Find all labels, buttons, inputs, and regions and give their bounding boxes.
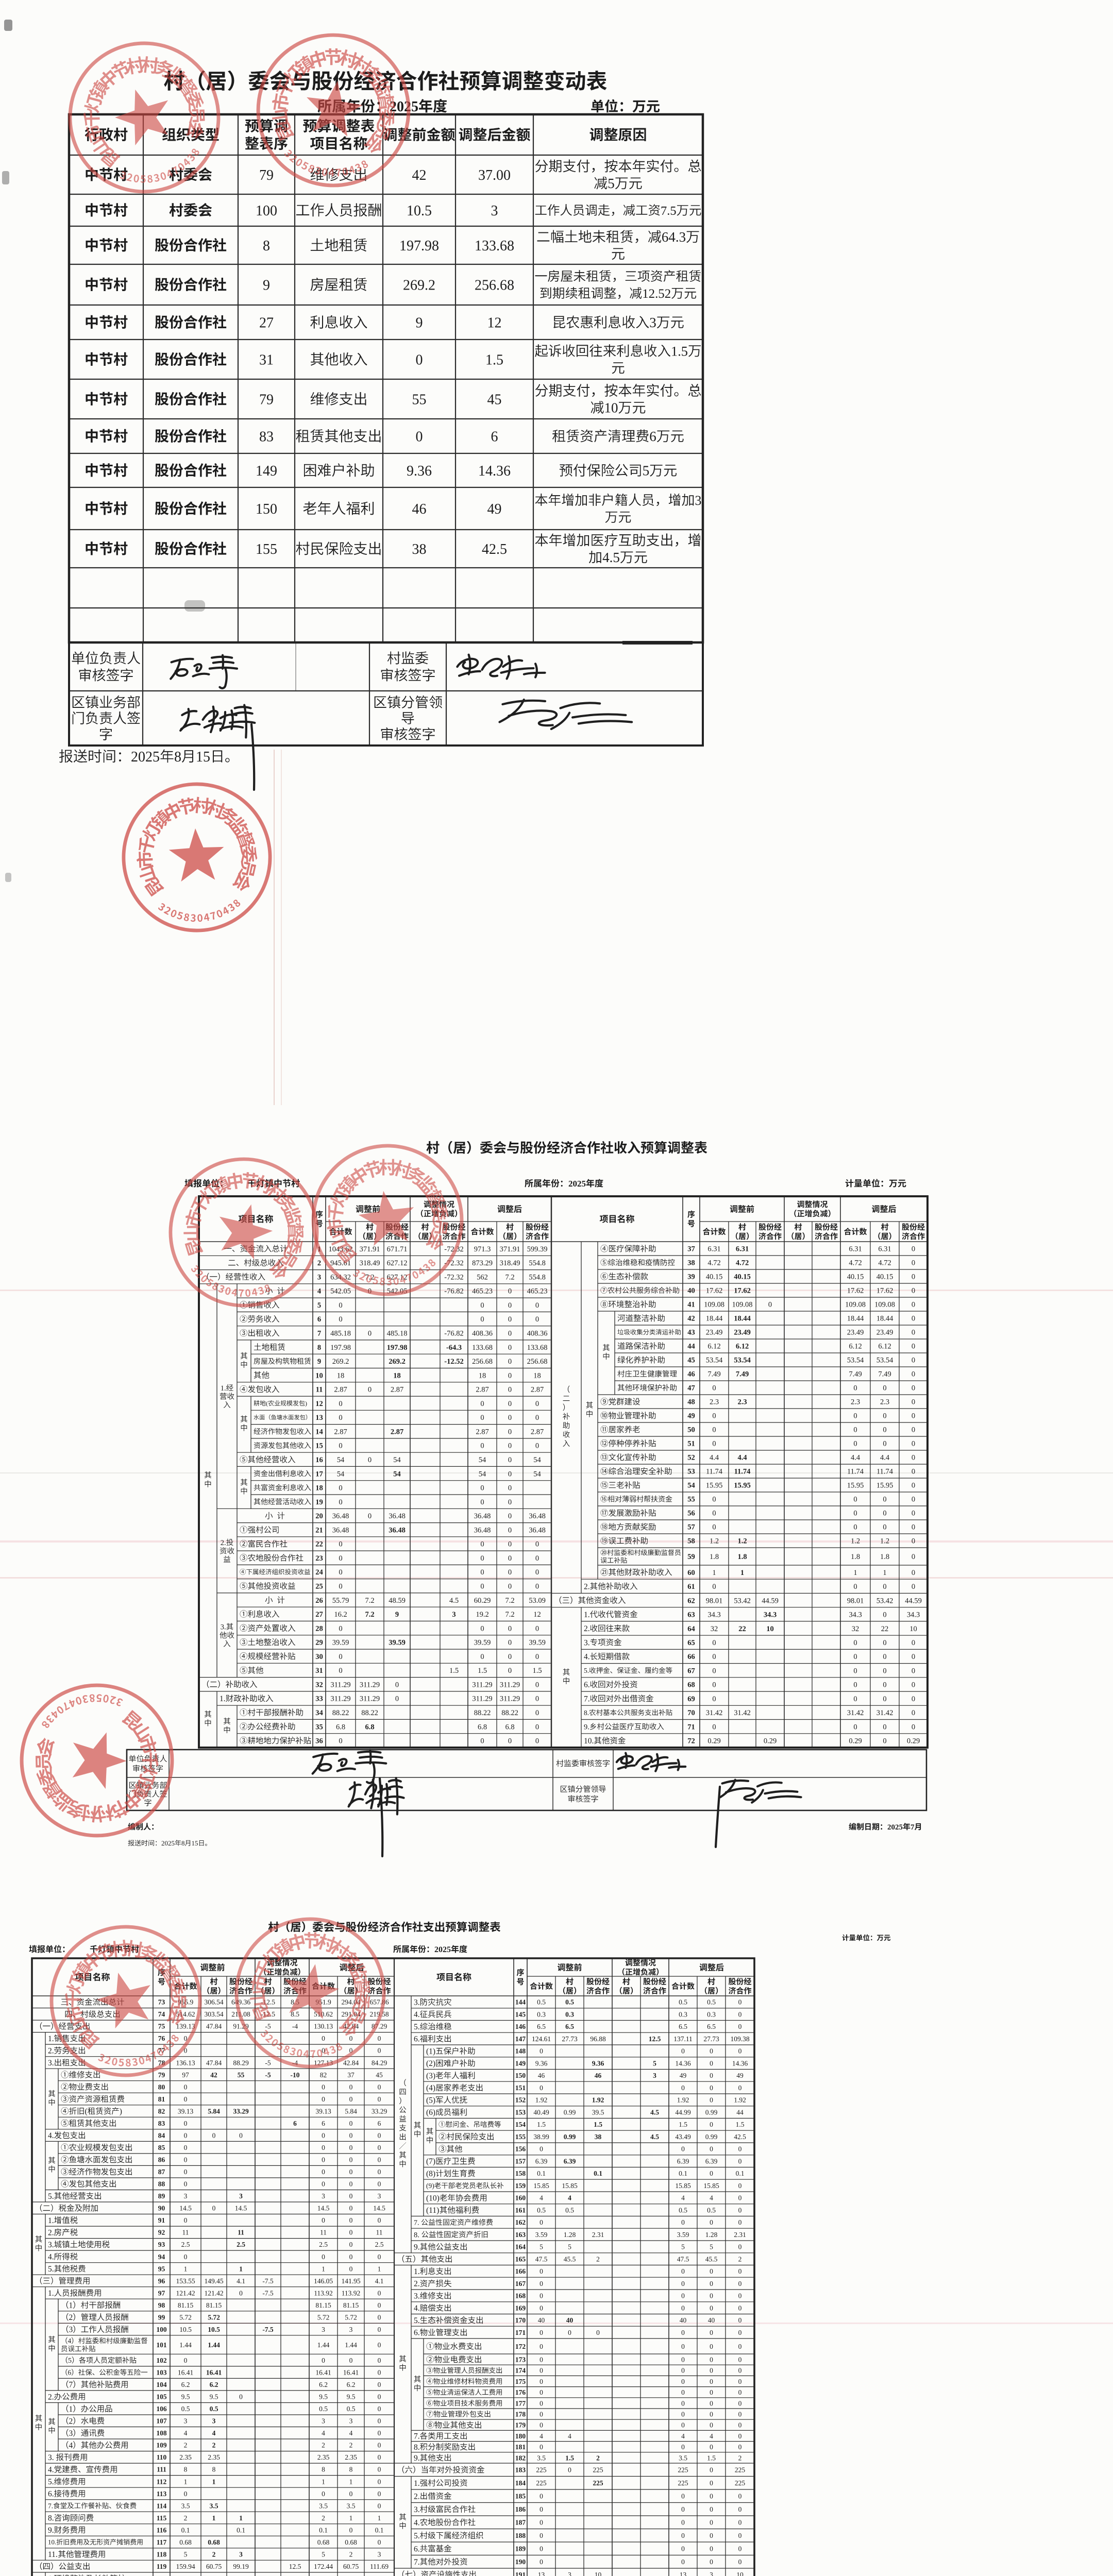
svg-text:0: 0 [710, 2505, 713, 2513]
svg-text:34.3: 34.3 [849, 1611, 862, 1619]
svg-text:36.48: 36.48 [529, 1526, 546, 1534]
svg-text:80: 80 [158, 2083, 165, 2091]
svg-text:0: 0 [738, 2329, 742, 2336]
svg-text:5.84: 5.84 [208, 2107, 220, 2115]
svg-text:0: 0 [480, 1653, 484, 1661]
svg-text:22: 22 [315, 1540, 323, 1549]
svg-text:0.1: 0.1 [736, 2170, 745, 2177]
svg-text:23.49: 23.49 [706, 1329, 723, 1337]
svg-text:52: 52 [687, 1454, 695, 1462]
svg-text:0: 0 [378, 2369, 381, 2377]
svg-text:0: 0 [535, 1709, 539, 1717]
svg-text:90: 90 [158, 2205, 165, 2212]
svg-text:269.2: 269.2 [403, 278, 435, 294]
svg-text:-10: -10 [291, 2071, 300, 2079]
svg-text:0: 0 [681, 2047, 685, 2055]
svg-text:3: 3 [649, 315, 656, 330]
svg-text:3: 3 [212, 2417, 216, 2425]
svg-text:14.36: 14.36 [732, 2060, 748, 2067]
svg-text:97: 97 [158, 2289, 165, 2297]
svg-text:0: 0 [184, 2490, 188, 2498]
svg-text:0.5: 0.5 [565, 1998, 574, 2006]
svg-text:6.39: 6.39 [705, 2158, 718, 2165]
svg-text:53.54: 53.54 [734, 1357, 751, 1365]
svg-text:225: 225 [536, 2479, 547, 2487]
svg-text:15: 15 [315, 1442, 323, 1450]
svg-text:37: 37 [347, 2071, 355, 2079]
svg-text:2.5: 2.5 [237, 2241, 245, 2248]
svg-text:12: 12 [315, 1400, 323, 1408]
svg-text:39.59: 39.59 [389, 1639, 406, 1647]
svg-text:3.59: 3.59 [677, 2231, 689, 2239]
svg-text:166: 166 [515, 2267, 526, 2275]
svg-text:0: 0 [184, 2168, 188, 2176]
svg-text:38: 38 [687, 1259, 695, 1267]
svg-text:1: 1 [883, 1569, 886, 1577]
svg-text:0: 0 [912, 1510, 915, 1518]
svg-text:16.2: 16.2 [334, 1611, 347, 1619]
svg-text:0: 0 [508, 1470, 512, 1478]
svg-text:4: 4 [322, 2429, 325, 2437]
svg-text:7.49: 7.49 [878, 1370, 891, 1379]
svg-text:6: 6 [378, 2120, 381, 2127]
svg-text:0: 0 [508, 1512, 512, 1520]
svg-text:408.36: 408.36 [527, 1330, 548, 1338]
svg-text:0: 0 [378, 2478, 381, 2485]
svg-text:23.49: 23.49 [734, 1329, 751, 1337]
svg-text:0: 0 [535, 1554, 539, 1563]
svg-text:75: 75 [158, 2023, 165, 2030]
svg-text:81.15: 81.15 [343, 2301, 359, 2309]
svg-text:0: 0 [681, 2145, 685, 2153]
svg-text:167: 167 [515, 2280, 526, 2287]
svg-text:36.48: 36.48 [529, 1512, 546, 1520]
svg-text:4: 4 [681, 2194, 685, 2202]
svg-text:1.5: 1.5 [537, 2121, 546, 2128]
svg-text:0: 0 [535, 1400, 539, 1408]
svg-text:303.54: 303.54 [204, 2010, 223, 2018]
svg-text:0: 0 [912, 1583, 915, 1591]
svg-text:6.8: 6.8 [505, 1723, 514, 1731]
svg-text:83: 83 [158, 2120, 165, 2127]
svg-text:4: 4 [710, 2432, 713, 2440]
svg-text:163: 163 [515, 2231, 526, 2239]
svg-text:0: 0 [712, 1695, 716, 1703]
svg-text:9: 9 [317, 1358, 321, 1366]
svg-text:2.: 2. [221, 1539, 226, 1547]
svg-text:(1): (1) [426, 2047, 435, 2056]
svg-text:1.8: 1.8 [851, 1553, 860, 1561]
svg-text:42.5: 42.5 [734, 2133, 746, 2141]
svg-text:69: 69 [687, 1695, 695, 1703]
svg-text:0: 0 [368, 1512, 372, 1520]
svg-text:79: 79 [259, 167, 274, 183]
svg-text:13: 13 [680, 2571, 687, 2576]
svg-text:3: 3 [349, 2417, 353, 2425]
svg-text:225: 225 [593, 2479, 603, 2487]
svg-text:(6): (6) [426, 2108, 435, 2117]
svg-text:5.84: 5.84 [345, 2107, 357, 2115]
svg-text:0: 0 [239, 2132, 243, 2140]
svg-text:0.68: 0.68 [317, 2538, 330, 2546]
svg-text:0: 0 [184, 2357, 188, 2364]
svg-text:153: 153 [515, 2109, 526, 2116]
svg-text:0: 0 [738, 2243, 742, 2251]
svg-text:70: 70 [687, 1709, 695, 1717]
svg-text:20: 20 [315, 1512, 323, 1520]
svg-text:0: 0 [712, 1667, 716, 1675]
svg-text:173: 173 [515, 2356, 526, 2364]
svg-text:180: 180 [515, 2432, 526, 2440]
svg-text:0: 0 [912, 1553, 915, 1561]
svg-text:45: 45 [487, 392, 502, 408]
svg-text:162: 162 [515, 2218, 526, 2226]
svg-text:0: 0 [738, 2194, 742, 2202]
svg-text:83: 83 [259, 429, 274, 445]
svg-text:88.22: 88.22 [501, 1709, 518, 1717]
svg-text:0: 0 [738, 2367, 742, 2375]
svg-text:1: 1 [239, 2514, 243, 2522]
svg-text:0: 0 [539, 2558, 543, 2566]
svg-text:0: 0 [712, 1510, 716, 1518]
svg-text:0: 0 [681, 2084, 685, 2092]
svg-text:36.48: 36.48 [332, 1512, 349, 1520]
svg-text:113: 113 [157, 2490, 167, 2498]
svg-text:1: 1 [349, 2514, 353, 2522]
svg-text:1: 1 [69, 2301, 73, 2310]
svg-text:0: 0 [738, 2023, 742, 2030]
svg-text:112: 112 [157, 2478, 167, 2485]
svg-text:54: 54 [687, 1482, 695, 1490]
svg-text:7.: 7. [48, 2502, 53, 2510]
svg-text:45: 45 [376, 2071, 383, 2079]
svg-text:0: 0 [480, 1583, 484, 1591]
svg-text:0: 0 [712, 1384, 716, 1393]
svg-text:0: 0 [710, 2378, 713, 2385]
svg-text:32: 32 [711, 1625, 718, 1633]
svg-text:1: 1 [378, 2265, 381, 2273]
svg-text:9: 9 [263, 278, 270, 294]
svg-text:225: 225 [678, 2466, 688, 2474]
svg-text:0: 0 [738, 2267, 742, 2275]
svg-text:6.39: 6.39 [677, 2158, 689, 2165]
svg-text:0: 0 [912, 1329, 915, 1337]
svg-text:6.31: 6.31 [849, 1245, 862, 1253]
svg-text:0: 0 [339, 1653, 342, 1661]
svg-text:(5): (5) [426, 2096, 435, 2105]
svg-text:0: 0 [912, 1370, 915, 1379]
svg-text:2.35: 2.35 [345, 2453, 357, 2461]
svg-text:0.5: 0.5 [707, 1998, 716, 2006]
svg-text:73: 73 [158, 1998, 165, 2006]
svg-text:148: 148 [515, 2047, 526, 2055]
svg-text:0: 0 [508, 1639, 512, 1647]
svg-text:31.42: 31.42 [876, 1709, 893, 1717]
svg-text:1.5: 1.5 [565, 2454, 574, 2462]
svg-text:0: 0 [710, 2267, 713, 2275]
svg-text:0: 0 [883, 1639, 886, 1647]
svg-text:1.: 1. [414, 2479, 420, 2488]
svg-text:92: 92 [158, 2229, 165, 2236]
svg-text:117: 117 [157, 2538, 167, 2546]
svg-text:1.44: 1.44 [317, 2341, 330, 2349]
svg-text:8: 8 [322, 2466, 325, 2473]
svg-text:1.: 1. [48, 2216, 54, 2225]
svg-text:46: 46 [595, 2072, 602, 2079]
svg-text:108: 108 [156, 2429, 167, 2437]
svg-text:6.12: 6.12 [736, 1343, 749, 1351]
svg-text:99.19: 99.19 [233, 2563, 249, 2570]
svg-text:0: 0 [322, 2144, 325, 2151]
svg-text:311.29: 311.29 [472, 1681, 492, 1689]
svg-text:0.1: 0.1 [181, 2526, 190, 2534]
svg-text:3: 3 [710, 2571, 713, 2576]
svg-text:0: 0 [738, 2047, 742, 2055]
svg-text:7: 7 [69, 2381, 73, 2389]
svg-text:5: 5 [653, 2060, 656, 2067]
svg-text:189: 189 [515, 2545, 526, 2553]
svg-text:0: 0 [508, 1371, 512, 1380]
svg-text:0: 0 [738, 2545, 742, 2553]
svg-text:4: 4 [539, 2194, 543, 2202]
svg-text:5.72: 5.72 [179, 2313, 192, 2321]
svg-text:2.: 2. [414, 2280, 420, 2289]
svg-text:164: 164 [515, 2243, 526, 2251]
svg-text:27.73: 27.73 [703, 2035, 719, 2043]
svg-text:31.42: 31.42 [734, 1709, 751, 1717]
svg-text:0: 0 [539, 2532, 543, 2539]
svg-text:6.2: 6.2 [319, 2381, 328, 2388]
svg-text:181: 181 [515, 2443, 526, 2451]
svg-text:9: 9 [395, 1611, 399, 1619]
svg-text:81.15: 81.15 [315, 2301, 331, 2309]
svg-text:6.8: 6.8 [336, 1723, 345, 1731]
svg-text:2: 2 [738, 2256, 742, 2263]
svg-text:3.: 3. [414, 2505, 420, 2514]
svg-text:0: 0 [853, 1723, 857, 1731]
svg-text:15: 15 [196, 749, 210, 765]
svg-text:14: 14 [315, 1428, 323, 1436]
svg-text:2.3: 2.3 [851, 1398, 860, 1406]
svg-text:0: 0 [712, 1496, 716, 1504]
svg-text:8: 8 [263, 238, 270, 254]
svg-text:4.72: 4.72 [736, 1259, 749, 1267]
svg-text:0: 0 [912, 1259, 915, 1267]
svg-text:86: 86 [158, 2156, 165, 2164]
svg-text:2: 2 [69, 2313, 73, 2322]
svg-text:225: 225 [735, 2479, 746, 2487]
svg-text:21: 21 [315, 1526, 323, 1534]
svg-text:1.8: 1.8 [880, 1553, 889, 1561]
svg-text:408.36: 408.36 [472, 1330, 493, 1338]
svg-text:311.29: 311.29 [500, 1681, 520, 1689]
svg-text:0: 0 [212, 2132, 216, 2140]
svg-text:16: 16 [315, 1456, 323, 1464]
svg-text:0: 0 [322, 2035, 325, 2042]
svg-text:0: 0 [710, 2411, 713, 2418]
svg-text:110: 110 [157, 2453, 167, 2461]
svg-text:4.1: 4.1 [375, 2277, 384, 2285]
svg-text:7.2: 7.2 [505, 1611, 514, 1619]
svg-text:170: 170 [515, 2316, 526, 2324]
svg-text:0: 0 [710, 2356, 713, 2364]
svg-text:158: 158 [515, 2170, 526, 2177]
svg-text:5.: 5. [414, 2532, 420, 2540]
svg-text:(3): (3) [426, 2072, 435, 2080]
svg-text:36.48: 36.48 [474, 1526, 491, 1534]
svg-text:0: 0 [738, 2505, 742, 2513]
svg-text:9.: 9. [414, 2243, 420, 2252]
svg-text:18: 18 [337, 1371, 345, 1380]
svg-text:0: 0 [508, 1583, 512, 1591]
svg-text:0: 0 [349, 2229, 353, 2236]
svg-text:0: 0 [912, 1653, 915, 1661]
svg-text:5: 5 [710, 2243, 713, 2251]
svg-text:0: 0 [712, 1440, 716, 1448]
svg-text:2.87: 2.87 [334, 1386, 347, 1394]
svg-text:4.5: 4.5 [449, 1597, 459, 1605]
svg-text:0: 0 [480, 1301, 484, 1310]
svg-text:0: 0 [535, 1414, 539, 1422]
svg-text:29: 29 [315, 1639, 323, 1647]
svg-text:1: 1 [322, 2478, 325, 2485]
svg-text:89: 89 [158, 2192, 165, 2200]
svg-text:1: 1 [712, 1569, 716, 1577]
svg-text:0: 0 [912, 1569, 915, 1577]
svg-text:0: 0 [349, 2490, 353, 2498]
svg-text:0: 0 [378, 2417, 381, 2425]
svg-text:0: 0 [681, 2411, 685, 2418]
svg-text:6: 6 [491, 429, 498, 445]
svg-text:144: 144 [515, 1998, 526, 2006]
svg-text:-76.82: -76.82 [444, 1287, 463, 1296]
svg-text:3: 3 [491, 203, 498, 219]
svg-text:3: 3 [378, 2192, 381, 2200]
svg-text:0: 0 [681, 2388, 685, 2396]
svg-text:0: 0 [738, 2158, 742, 2165]
svg-text:49: 49 [736, 2072, 744, 2079]
svg-text:43.49: 43.49 [675, 2133, 691, 2141]
svg-text:0: 0 [508, 1484, 512, 1493]
svg-text:0: 0 [480, 1568, 484, 1577]
svg-text:18.44: 18.44 [706, 1315, 723, 1323]
svg-text:0: 0 [539, 2356, 543, 2364]
svg-text:2.87: 2.87 [531, 1386, 544, 1394]
svg-text:0: 0 [539, 2399, 543, 2407]
svg-text:82: 82 [158, 2107, 165, 2115]
svg-text:4: 4 [568, 2432, 571, 2440]
svg-text:0: 0 [378, 2442, 381, 2449]
svg-text:5.72: 5.72 [208, 2313, 220, 2321]
svg-text:0.1: 0.1 [537, 2170, 546, 2177]
svg-text:7.2: 7.2 [365, 1611, 374, 1619]
svg-text:15.85: 15.85 [562, 2182, 578, 2190]
svg-text:40: 40 [680, 2316, 687, 2324]
svg-text:0: 0 [339, 1624, 342, 1633]
svg-text:0.68: 0.68 [208, 2538, 220, 2546]
svg-text:54: 54 [533, 1456, 541, 1464]
svg-text:150: 150 [515, 2072, 526, 2079]
svg-text:60: 60 [687, 1569, 695, 1577]
svg-text:599.39: 599.39 [527, 1245, 548, 1253]
svg-text:3.: 3. [48, 2241, 54, 2249]
svg-text:68: 68 [687, 1681, 695, 1689]
svg-text:10.: 10. [48, 2538, 56, 2546]
svg-text:0: 0 [480, 1554, 484, 1563]
svg-text:0: 0 [710, 2479, 713, 2487]
svg-text:2.5: 2.5 [319, 2241, 328, 2248]
svg-text:7: 7 [317, 1330, 321, 1338]
svg-text:0: 0 [508, 1400, 512, 1408]
svg-text:0: 0 [539, 2388, 543, 2396]
svg-text:39.59: 39.59 [474, 1639, 491, 1647]
svg-text:0: 0 [853, 1510, 857, 1518]
svg-text:0: 0 [738, 2084, 742, 2092]
svg-text:53.09: 53.09 [529, 1597, 546, 1605]
svg-text:186: 186 [515, 2505, 526, 2513]
svg-text:2: 2 [349, 2550, 353, 2558]
svg-text:9.5: 9.5 [181, 2393, 190, 2401]
svg-text:7.: 7. [584, 1694, 590, 1703]
svg-text:-72.32: -72.32 [444, 1273, 463, 1281]
svg-text:3.5: 3.5 [181, 2502, 190, 2510]
svg-text:-7.5: -7.5 [262, 2289, 274, 2297]
svg-text:40: 40 [566, 2316, 574, 2324]
svg-text:115: 115 [157, 2514, 167, 2522]
svg-text:139.13: 139.13 [176, 2023, 195, 2030]
svg-text:0: 0 [349, 2132, 353, 2140]
svg-text:141.95: 141.95 [341, 2277, 360, 2285]
svg-text:0: 0 [378, 2341, 381, 2349]
svg-text:0: 0 [378, 2393, 381, 2401]
svg-text:225: 225 [678, 2479, 688, 2487]
svg-text:6.5: 6.5 [679, 2023, 687, 2030]
svg-text:-64.3: -64.3 [446, 1344, 462, 1352]
svg-text:0: 0 [681, 2421, 685, 2429]
svg-text:60.75: 60.75 [206, 2563, 222, 2570]
svg-text:33.29: 33.29 [372, 2107, 387, 2115]
svg-text:4.5: 4.5 [650, 2133, 659, 2141]
svg-text:38.99: 38.99 [533, 2133, 549, 2141]
svg-text:137.11: 137.11 [673, 2035, 693, 2043]
svg-text:1.: 1. [414, 2267, 420, 2276]
svg-text:25: 25 [315, 1583, 323, 1591]
svg-text:109: 109 [156, 2442, 167, 2449]
svg-text:4: 4 [568, 2194, 571, 2202]
svg-text:46: 46 [538, 2072, 545, 2079]
svg-text:14.5: 14.5 [179, 2205, 192, 2212]
svg-text:9: 9 [416, 315, 423, 331]
svg-text:14.36: 14.36 [675, 2060, 691, 2067]
svg-text:0: 0 [738, 2356, 742, 2364]
svg-text:0: 0 [480, 1442, 484, 1450]
svg-text:16.41: 16.41 [206, 2369, 222, 2377]
svg-text:19: 19 [315, 1498, 323, 1506]
svg-text:1.92: 1.92 [677, 2096, 689, 2104]
svg-text:12: 12 [487, 315, 502, 331]
svg-text:165: 165 [515, 2256, 526, 2263]
svg-text:1: 1 [239, 2265, 243, 2273]
svg-text:0: 0 [712, 1523, 716, 1532]
svg-text:6.31: 6.31 [878, 1245, 891, 1253]
svg-text:0: 0 [212, 2205, 216, 2212]
svg-text:0: 0 [480, 1315, 484, 1324]
svg-text:0: 0 [712, 1426, 716, 1434]
svg-text:0: 0 [738, 2519, 742, 2527]
svg-text:106: 106 [156, 2405, 167, 2413]
svg-text:44: 44 [687, 1343, 695, 1351]
svg-text:0: 0 [738, 2399, 742, 2407]
